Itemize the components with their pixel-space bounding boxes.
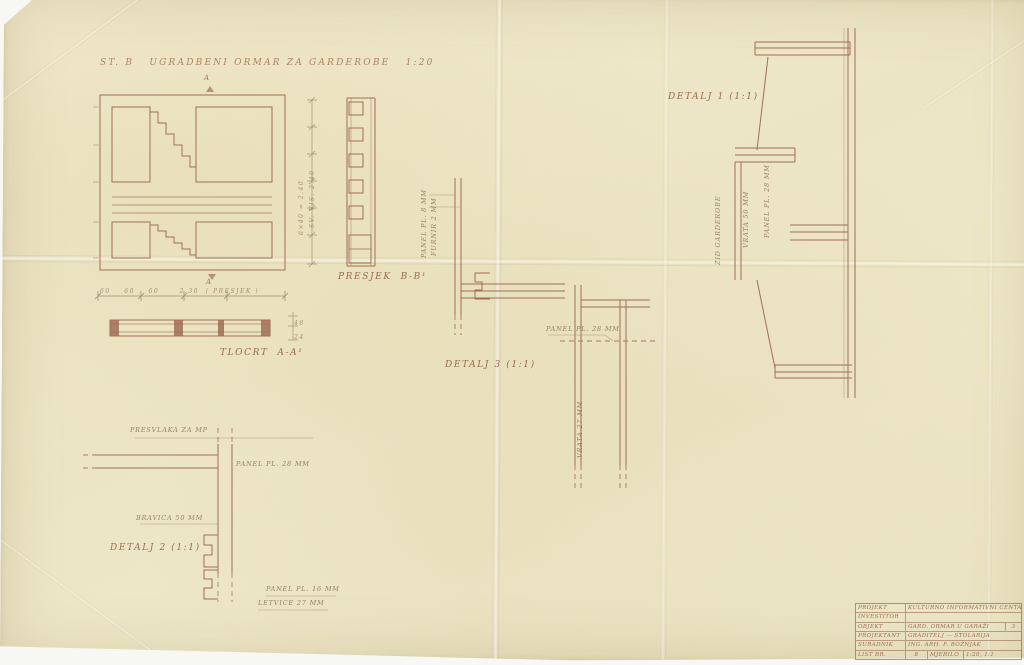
title-block-field-label: INVESTITOR [856, 613, 906, 621]
title-block-field-label: PROJEKT [856, 604, 906, 612]
title-block-row: INVESTITOR [856, 612, 1021, 621]
title-block-field-value [906, 613, 1021, 621]
title-block-field-value: KULTURNO INFORMATIVNI CENTAR [906, 604, 1021, 612]
plan-section-label: TLOCRT A-A¹ [220, 348, 303, 358]
detail-3-drawing [415, 165, 685, 505]
title-block-field-label: OBJEKT [856, 623, 906, 631]
detail-3-linework [415, 165, 685, 505]
title-block-row: OBJEKT GARD. ORMAR U GARAŽI 3 [856, 622, 1021, 631]
detail1-annotation-vrata: VRATA 50 MM [742, 191, 750, 248]
plan-dimension-row: 60 60 60 2.30 ( PRESJEK ) [100, 288, 259, 295]
detail1-annotation-zid: ZID GARDEROBE [714, 196, 722, 265]
title-block: PROJEKT KULTURNO INFORMATIVNI CENTAR INV… [855, 603, 1022, 660]
detail3-annotation-furnir: FURNIR 2 MM [430, 198, 438, 256]
title-block-field-label: SURADNIK [856, 641, 906, 649]
drawing-content: ST. B UGRADBENI ORMAR ZA GARDEROBE 1:20 [0, 0, 1024, 665]
title-block-scale-value: 1:20, 1:1 [964, 651, 1021, 659]
vertical-section-linework [290, 92, 390, 292]
detail1-label: DETALJ 1 (1:1) [668, 92, 759, 102]
vertical-section-label: PRESJEK B-B¹ [338, 272, 427, 282]
title-block-field-label: LIST BR. [856, 651, 906, 659]
title-block-field-value: ING. ARH. F. BOŽNJAK [906, 641, 1021, 649]
strip-dim-top: 48 [294, 320, 305, 327]
detail2-annotation-letvice: LETVICE 27 MM [258, 599, 325, 607]
cabinet-elevation-linework [88, 85, 298, 285]
title-block-field-value: GRADITELJ — STOLARIJA [906, 632, 1021, 640]
title-block-field-label: PROJEKTANT [856, 632, 906, 640]
drawing-title: ST. B UGRADBENI ORMAR ZA GARDEROBE 1:20 [100, 58, 435, 68]
strip-dim-bottom: 24 [294, 334, 305, 341]
detail2-label: DETALJ 2 (1:1) [110, 543, 201, 553]
detail1-annotation-panel: PANEL PL. 28 MM [763, 164, 771, 238]
title-block-sheet-count: 3 [1005, 623, 1021, 631]
detail2-annotation-presvlaka: PRESVLAKA ZA MP [130, 426, 208, 434]
detail-1-linework [698, 22, 873, 402]
cabinet-elevation-drawing [88, 85, 298, 285]
detail3-annotation-panel8: PANEL PL. 8 MM [420, 189, 428, 258]
title-block-sheet-number: 8 [906, 651, 928, 659]
detail3-label: DETALJ 3 (1:1) [445, 360, 536, 370]
detail2-annotation-panel16: PANEL PL. 16 MM [266, 585, 340, 593]
section-marker-top: A [204, 74, 209, 82]
cabinet-vertical-section-drawing [290, 92, 390, 292]
height-dimension-right: SV. VIS. 2.40 [309, 170, 316, 228]
scanned-drawing-sheet: ST. B UGRADBENI ORMAR ZA GARDEROBE 1:20 [0, 0, 1024, 665]
detail2-annotation-bravica: BRAVICA 50 MM [136, 514, 203, 522]
detail2-annotation-panel28: PANEL PL. 28 MM [236, 460, 310, 468]
detail3-annotation-panel28: PANEL PL. 28 MM [546, 325, 620, 333]
title-block-row: LIST BR. 8 MJERILO 1:20, 1:1 [856, 650, 1021, 659]
title-block-row: PROJEKT KULTURNO INFORMATIVNI CENTAR [856, 604, 1021, 612]
title-block-row: SURADNIK ING. ARH. F. BOŽNJAK [856, 640, 1021, 649]
title-block-scale-label: MJERILO [928, 651, 964, 659]
detail-1-drawing [698, 22, 873, 402]
title-block-field-value: GARD. ORMAR U GARAŽI [906, 623, 1005, 631]
detail3-annotation-vrata: VRATA 27 MM [576, 401, 584, 458]
height-dimension-left: 6×40 = 2.40 [298, 180, 305, 235]
title-block-row: PROJEKTANT GRADITELJ — STOLARIJA [856, 631, 1021, 640]
